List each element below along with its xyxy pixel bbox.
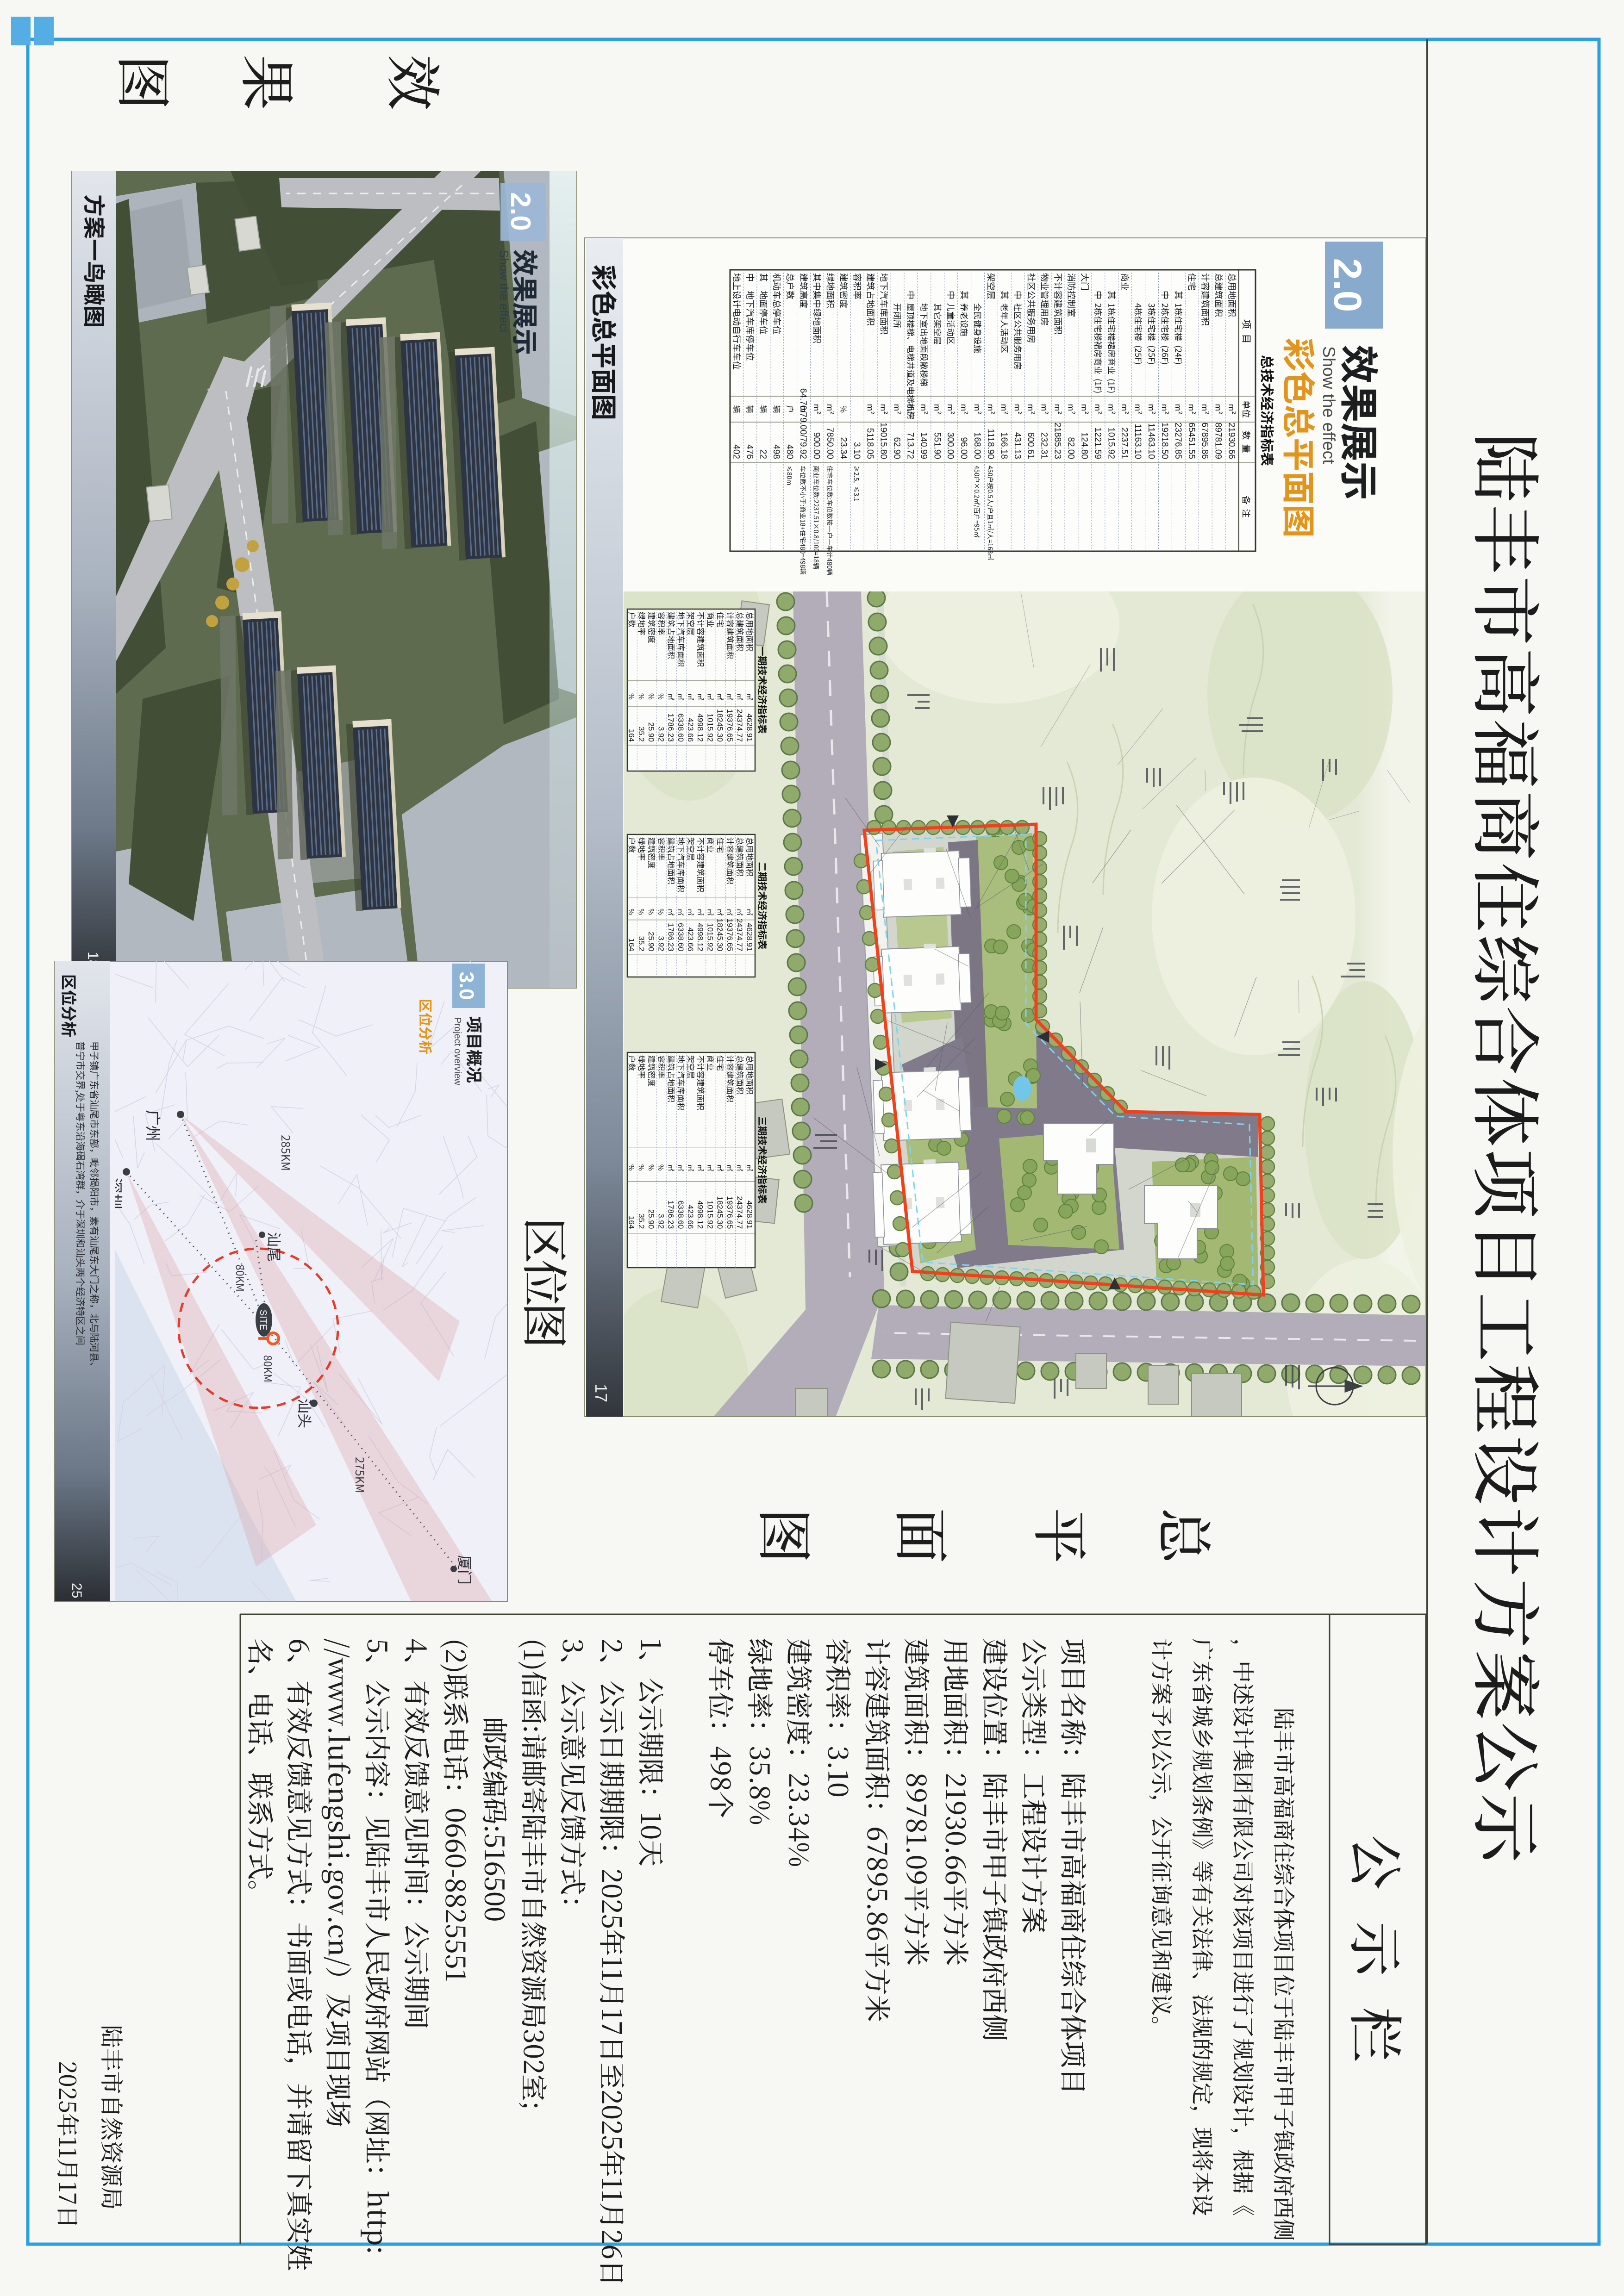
svg-text:19015.80: 19015.80 bbox=[879, 423, 888, 459]
svg-text:900.00: 900.00 bbox=[812, 432, 821, 459]
svg-text:5118.05: 5118.05 bbox=[865, 428, 875, 459]
svg-text:431.13: 431.13 bbox=[1012, 432, 1022, 459]
svg-text:25.90: 25.90 bbox=[647, 1209, 656, 1229]
svg-text:551.90: 551.90 bbox=[932, 432, 942, 459]
svg-text:4998.12: 4998.12 bbox=[696, 714, 705, 742]
svg-text:423.66: 423.66 bbox=[686, 718, 695, 742]
svg-text:19218.50: 19218.50 bbox=[1160, 423, 1169, 459]
svg-text:164: 164 bbox=[627, 1216, 636, 1229]
svg-text:4628.91: 4628.91 bbox=[745, 923, 754, 951]
svg-text:64.70/79.00/79.92: 64.70/79.00/79.92 bbox=[798, 388, 808, 459]
svg-text:18245.30: 18245.30 bbox=[716, 709, 725, 742]
svg-text:1221.59: 1221.59 bbox=[1093, 427, 1102, 459]
svg-text:35.2: 35.2 bbox=[637, 727, 646, 742]
svg-text:476: 476 bbox=[744, 444, 754, 459]
svg-text:124.80: 124.80 bbox=[1079, 432, 1089, 459]
svg-text:11163.10: 11163.10 bbox=[1133, 424, 1143, 459]
svg-text:3.92: 3.92 bbox=[656, 1213, 665, 1229]
svg-text:19376.65: 19376.65 bbox=[725, 919, 734, 952]
svg-text:89781.09: 89781.09 bbox=[1213, 423, 1223, 459]
svg-text:18245.30: 18245.30 bbox=[716, 1196, 725, 1229]
svg-text:3.10: 3.10 bbox=[852, 442, 862, 459]
svg-text:25.90: 25.90 bbox=[647, 722, 656, 742]
svg-text:1015.92: 1015.92 bbox=[706, 1201, 715, 1229]
svg-text:24374.77: 24374.77 bbox=[735, 709, 744, 742]
svg-text:21885.23: 21885.23 bbox=[1053, 423, 1062, 459]
svg-text:600.61: 600.61 bbox=[1026, 432, 1036, 459]
svg-text:1118.90: 1118.90 bbox=[986, 429, 995, 459]
svg-text:1786.23: 1786.23 bbox=[667, 714, 675, 742]
svg-text:6338.60: 6338.60 bbox=[676, 714, 685, 742]
svg-text:3.92: 3.92 bbox=[656, 727, 665, 742]
svg-text:402: 402 bbox=[731, 444, 741, 459]
svg-text:24374.77: 24374.77 bbox=[735, 1196, 744, 1229]
svg-text:713.72: 713.72 bbox=[905, 432, 915, 459]
svg-text:19376.65: 19376.65 bbox=[725, 709, 734, 742]
svg-text:35.2: 35.2 bbox=[637, 1213, 646, 1229]
svg-text:3.0: 3.0 bbox=[455, 971, 478, 1000]
svg-text:1786.23: 1786.23 bbox=[667, 923, 675, 951]
svg-text:67895.86: 67895.86 bbox=[1200, 423, 1210, 459]
svg-text:300.00: 300.00 bbox=[945, 432, 955, 459]
svg-text:82.00: 82.00 bbox=[1066, 437, 1076, 459]
svg-text:423.66: 423.66 bbox=[686, 1205, 695, 1229]
svg-text:2.0: 2.0 bbox=[1326, 258, 1369, 312]
svg-text:4998.12: 4998.12 bbox=[696, 1201, 705, 1229]
svg-text:7850.00: 7850.00 bbox=[825, 427, 835, 459]
svg-text:6338.60: 6338.60 bbox=[676, 1201, 685, 1229]
svg-text:25: 25 bbox=[69, 1583, 84, 1598]
svg-text:168.00: 168.00 bbox=[972, 432, 982, 459]
svg-text:17: 17 bbox=[592, 1384, 611, 1402]
svg-text:3.92: 3.92 bbox=[656, 936, 665, 952]
svg-text:Show the effect: Show the effect bbox=[497, 250, 511, 333]
svg-text:1015.92: 1015.92 bbox=[1106, 427, 1116, 459]
svg-text:166.18: 166.18 bbox=[999, 432, 1009, 459]
svg-text:140.99: 140.99 bbox=[918, 432, 928, 459]
svg-text:25.90: 25.90 bbox=[647, 932, 656, 952]
svg-text:21930.66: 21930.66 bbox=[1227, 423, 1237, 459]
svg-text:4998.12: 4998.12 bbox=[696, 923, 705, 951]
svg-text:423.66: 423.66 bbox=[686, 927, 695, 952]
svg-text:23276.85: 23276.85 bbox=[1173, 423, 1183, 459]
svg-text:23.34: 23.34 bbox=[838, 437, 848, 459]
svg-text:65451.55: 65451.55 bbox=[1187, 423, 1196, 459]
svg-text:2.0: 2.0 bbox=[505, 192, 536, 230]
svg-text:498: 498 bbox=[771, 444, 781, 459]
svg-text:232.31: 232.31 bbox=[1039, 432, 1049, 459]
svg-text:19376.65: 19376.65 bbox=[725, 1196, 734, 1229]
svg-text:24374.77: 24374.77 bbox=[735, 919, 744, 952]
svg-text:96.00: 96.00 bbox=[959, 437, 968, 459]
svg-text:SITE: SITE bbox=[258, 1310, 268, 1330]
svg-text:18245.30: 18245.30 bbox=[716, 919, 725, 952]
svg-text:62.90: 62.90 bbox=[892, 437, 902, 459]
svg-text:1015.92: 1015.92 bbox=[706, 923, 715, 951]
svg-text:164: 164 bbox=[627, 729, 636, 742]
svg-text:4628.91: 4628.91 bbox=[745, 714, 754, 742]
svg-text:Project overview: Project overview bbox=[452, 1017, 462, 1085]
svg-text:Show the effect: Show the effect bbox=[1319, 346, 1338, 464]
svg-text:35.2: 35.2 bbox=[637, 936, 646, 952]
svg-text:1015.92: 1015.92 bbox=[706, 714, 715, 742]
svg-text:480: 480 bbox=[785, 444, 794, 459]
svg-text:4628.91: 4628.91 bbox=[745, 1201, 754, 1229]
svg-text:22: 22 bbox=[758, 449, 768, 459]
svg-text:11463.10: 11463.10 bbox=[1146, 423, 1156, 459]
svg-text:6338.60: 6338.60 bbox=[676, 923, 685, 951]
svg-text:1786.23: 1786.23 bbox=[667, 1201, 675, 1229]
svg-text:2237.51: 2237.51 bbox=[1119, 427, 1129, 459]
svg-text:164: 164 bbox=[627, 938, 636, 951]
